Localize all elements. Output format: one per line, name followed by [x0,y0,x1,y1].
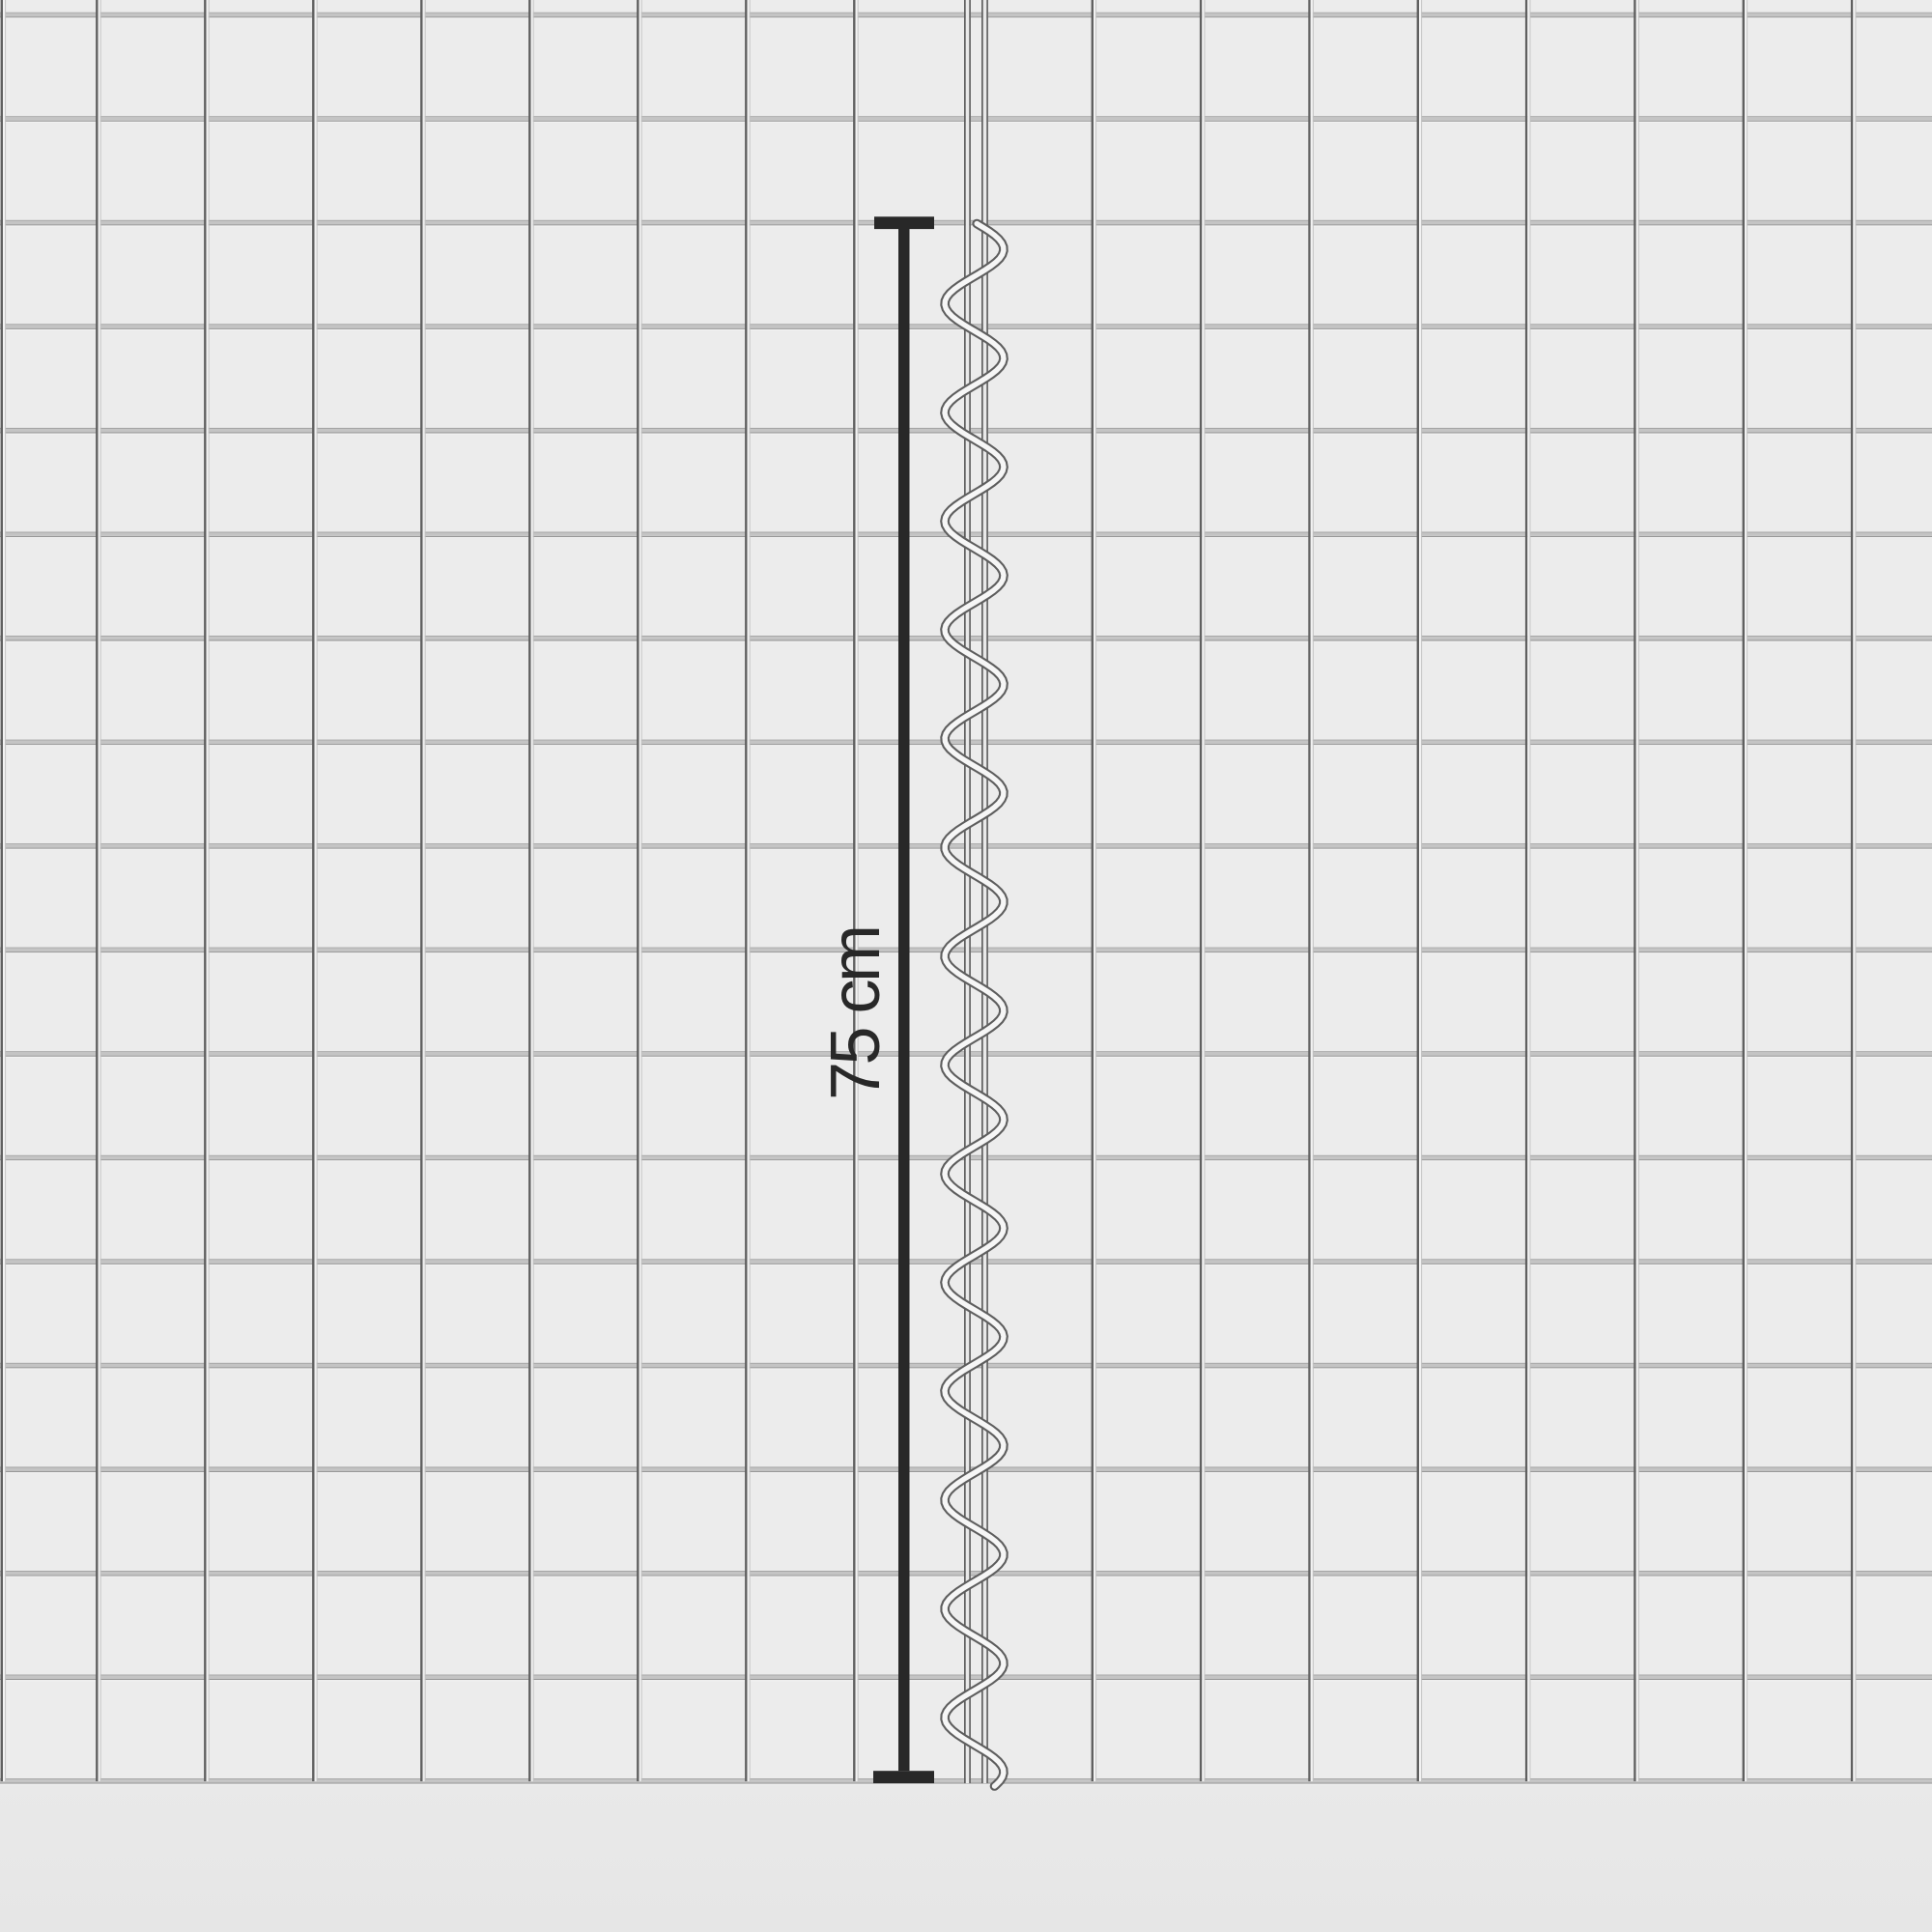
svg-text:75 cm: 75 cm [817,924,895,1100]
